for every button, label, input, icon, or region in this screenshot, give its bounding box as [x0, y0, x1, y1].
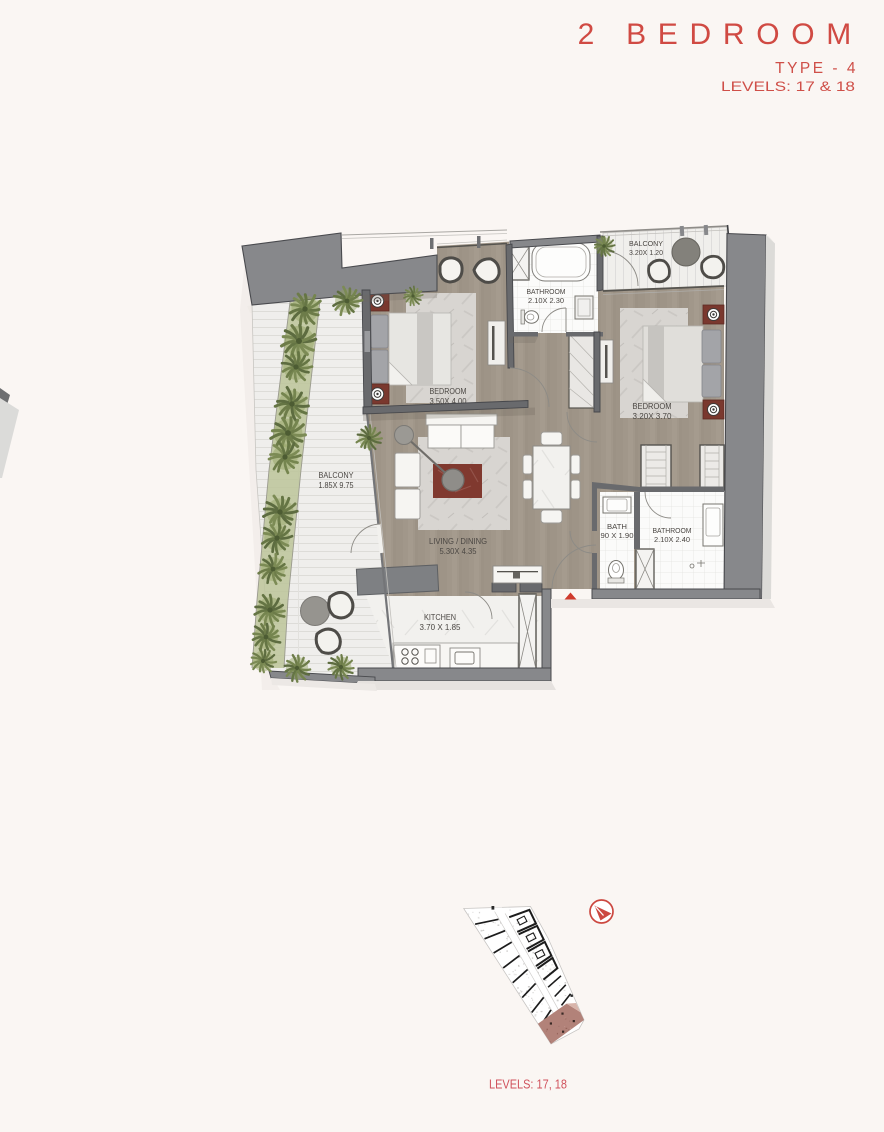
svg-text:2 BEDROOM: 2 BEDROOM [578, 18, 863, 51]
svg-text:2.10X 2.30: 2.10X 2.30 [528, 296, 564, 305]
svg-text:3.70 X 1.85: 3.70 X 1.85 [420, 623, 462, 632]
svg-text:3.20X 3.70: 3.20X 3.70 [633, 412, 673, 421]
svg-text:BATHROOM: BATHROOM [527, 287, 566, 296]
svg-text:5.30X 4.35: 5.30X 4.35 [440, 547, 478, 556]
svg-text:1.85X 9.75: 1.85X 9.75 [319, 481, 355, 490]
svg-text:BATH: BATH [607, 522, 627, 531]
svg-text:LEVELS: 17, 18: LEVELS: 17, 18 [489, 1077, 567, 1092]
svg-text:LEVELS: 17 & 18: LEVELS: 17 & 18 [721, 79, 855, 94]
svg-text:KITCHEN: KITCHEN [424, 613, 456, 622]
svg-text:BEDROOM: BEDROOM [430, 387, 467, 396]
svg-text:90 X 1.90: 90 X 1.90 [601, 531, 634, 540]
svg-text:TYPE - 4: TYPE - 4 [775, 60, 858, 77]
svg-text:2.10X 2.40: 2.10X 2.40 [654, 535, 690, 544]
svg-text:BATHROOM: BATHROOM [653, 526, 692, 535]
svg-text:BALCONY: BALCONY [629, 239, 663, 248]
svg-text:BALCONY: BALCONY [319, 471, 355, 480]
svg-text:3.20X 1.20: 3.20X 1.20 [629, 248, 663, 257]
svg-text:LIVING / DINING: LIVING / DINING [429, 537, 487, 546]
svg-text:BEDROOM: BEDROOM [633, 402, 672, 411]
